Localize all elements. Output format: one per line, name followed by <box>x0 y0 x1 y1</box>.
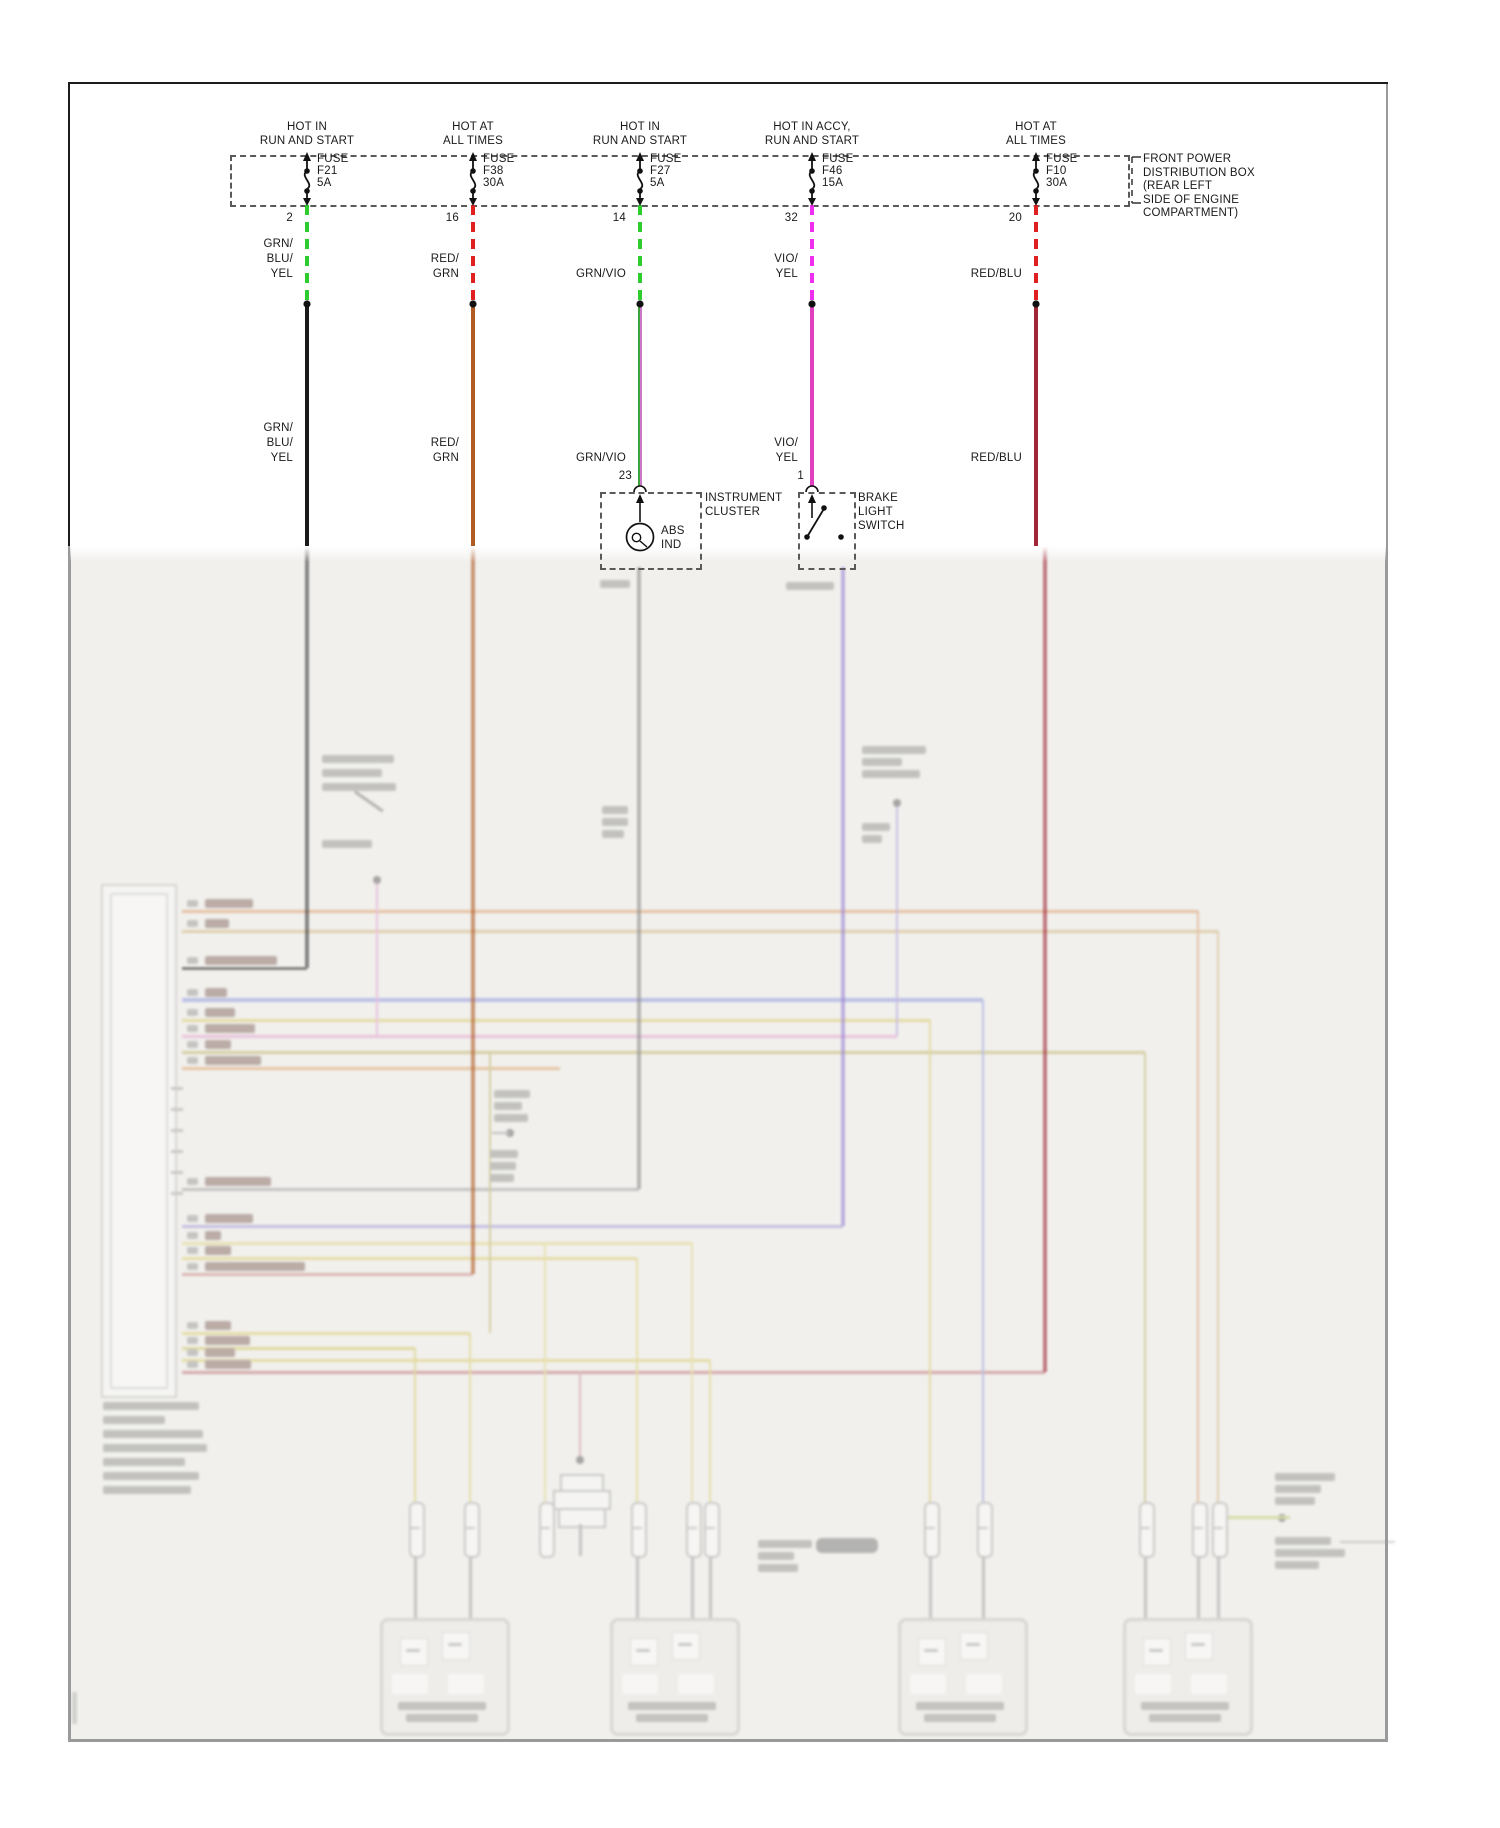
crisp-band-soft-edge <box>70 546 1386 562</box>
crisp-white-band <box>70 84 1386 546</box>
page-frame-left <box>68 546 71 1742</box>
page-frame-bottom <box>68 1739 1388 1742</box>
